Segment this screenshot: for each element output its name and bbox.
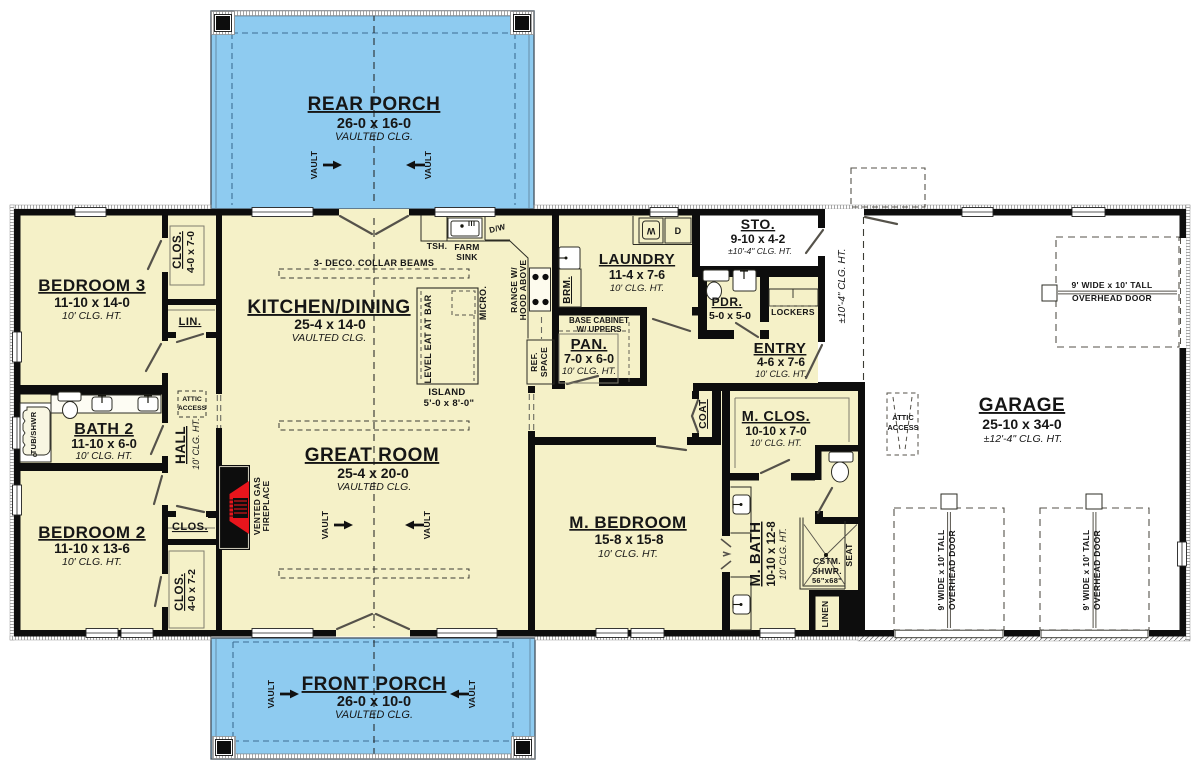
svg-text:OVERHEAD DOOR: OVERHEAD DOOR <box>1092 530 1102 610</box>
svg-text:REF.: REF. <box>529 352 539 372</box>
svg-text:±10'-4" CLG. HT.: ±10'-4" CLG. HT. <box>728 246 792 256</box>
svg-text:FARM: FARM <box>454 242 479 252</box>
svg-text:10' CLG. HT.: 10' CLG. HT. <box>750 438 801 448</box>
svg-text:10-10 x 7-0: 10-10 x 7-0 <box>745 424 807 438</box>
svg-text:STO.: STO. <box>741 216 775 232</box>
svg-text:10' CLG. HT.: 10' CLG. HT. <box>778 528 788 579</box>
svg-text:BEDROOM 3: BEDROOM 3 <box>38 276 145 295</box>
svg-text:ATTIC: ATTIC <box>892 413 914 422</box>
svg-text:VAULTED CLG.: VAULTED CLG. <box>337 481 412 493</box>
svg-text:SPACE: SPACE <box>539 347 549 377</box>
svg-text:SINK: SINK <box>456 252 478 262</box>
svg-text:VAULT: VAULT <box>266 679 276 708</box>
svg-text:ACCESS: ACCESS <box>887 423 918 432</box>
svg-text:MICRO.: MICRO. <box>478 286 488 320</box>
svg-text:VAULTED CLG.: VAULTED CLG. <box>335 131 413 143</box>
svg-text:10' CLG. HT.: 10' CLG. HT. <box>62 310 122 322</box>
svg-text:9' WIDE x 10' TALL: 9' WIDE x 10' TALL <box>1071 280 1152 290</box>
svg-text:7-0 x 6-0: 7-0 x 6-0 <box>564 352 614 366</box>
svg-text:M. BEDROOM: M. BEDROOM <box>569 513 686 532</box>
svg-text:LIN.: LIN. <box>179 316 202 328</box>
svg-text:ACCESS: ACCESS <box>178 405 207 412</box>
svg-text:4-0 x 7-0: 4-0 x 7-0 <box>185 231 197 273</box>
svg-text:LEVEL EAT AT BAR: LEVEL EAT AT BAR <box>423 294 433 383</box>
svg-text:CLOS.: CLOS. <box>174 573 186 611</box>
svg-text:W/ UPPERS: W/ UPPERS <box>577 325 623 334</box>
svg-text:FIREPLACE: FIREPLACE <box>261 481 271 532</box>
svg-text:BASE CABINET: BASE CABINET <box>569 316 629 325</box>
svg-text:LINEN: LINEN <box>820 601 830 628</box>
svg-text:10' CLG. HT.: 10' CLG. HT. <box>75 451 132 462</box>
svg-text:25-4 x 14-0: 25-4 x 14-0 <box>294 316 366 332</box>
svg-text:10' CLG. HT.: 10' CLG. HT. <box>610 283 664 294</box>
svg-text:W: W <box>646 226 655 236</box>
svg-text:VAULTED CLG.: VAULTED CLG. <box>335 709 413 721</box>
svg-text:±10'-4" CLG. HT.: ±10'-4" CLG. HT. <box>837 248 848 323</box>
svg-text:10' CLG. HT.: 10' CLG. HT. <box>755 369 806 379</box>
svg-text:LOCKERS: LOCKERS <box>771 307 815 317</box>
svg-text:SEAT: SEAT <box>844 543 854 567</box>
svg-text:10' CLG. HT.: 10' CLG. HT. <box>62 556 122 568</box>
svg-text:11-10 x 13-6: 11-10 x 13-6 <box>54 541 130 556</box>
svg-text:HALL: HALL <box>173 426 188 464</box>
svg-text:10' CLG. HT.: 10' CLG. HT. <box>598 548 658 560</box>
svg-text:LAUNDRY: LAUNDRY <box>599 251 675 268</box>
svg-text:10' CLG. HT.: 10' CLG. HT. <box>191 418 201 469</box>
svg-text:10' CLG. HT.: 10' CLG. HT. <box>562 366 616 377</box>
svg-text:COAT: COAT <box>698 399 709 429</box>
svg-text:11-4 x 7-6: 11-4 x 7-6 <box>609 268 665 282</box>
svg-text:ATTIC: ATTIC <box>182 396 202 403</box>
svg-text:FRONT PORCH: FRONT PORCH <box>302 674 447 695</box>
svg-text:PAN.: PAN. <box>571 336 608 353</box>
svg-text:GARAGE: GARAGE <box>979 395 1065 416</box>
svg-text:5'-0 x 8'-0": 5'-0 x 8'-0" <box>424 398 475 409</box>
svg-text:CLOS.: CLOS. <box>172 231 184 269</box>
svg-text:TUB/SHWR: TUB/SHWR <box>29 411 38 454</box>
svg-text:10-10 x 12-8: 10-10 x 12-8 <box>766 521 778 587</box>
svg-text:HOOD ABOVE: HOOD ABOVE <box>518 260 528 321</box>
svg-text:ISLAND: ISLAND <box>428 387 465 398</box>
svg-text:CSTM.: CSTM. <box>813 556 841 566</box>
svg-text:VAULTED CLG.: VAULTED CLG. <box>292 332 367 344</box>
svg-text:VAULT: VAULT <box>309 150 319 179</box>
svg-text:26-0 x 16-0: 26-0 x 16-0 <box>337 116 411 132</box>
svg-text:25-4 x 20-0: 25-4 x 20-0 <box>337 465 409 481</box>
svg-text:CLOS.: CLOS. <box>172 521 208 533</box>
svg-text:25-10 x 34-0: 25-10 x 34-0 <box>982 416 1062 432</box>
svg-text:26-0 x 10-0: 26-0 x 10-0 <box>337 694 411 710</box>
svg-text:11-10 x 14-0: 11-10 x 14-0 <box>54 295 130 310</box>
svg-text:M. BATH: M. BATH <box>747 522 764 587</box>
svg-text:4-0 x 7-2: 4-0 x 7-2 <box>186 569 198 611</box>
svg-text:M. CLOS.: M. CLOS. <box>742 409 810 425</box>
svg-text:9' WIDE x 10' TALL: 9' WIDE x 10' TALL <box>1081 529 1091 610</box>
svg-text:GREAT ROOM: GREAT ROOM <box>305 445 439 466</box>
svg-text:TSH.: TSH. <box>427 241 448 251</box>
svg-text:9' WIDE x 10' TALL: 9' WIDE x 10' TALL <box>936 529 946 610</box>
svg-text:OVERHEAD DOOR: OVERHEAD DOOR <box>1072 293 1152 303</box>
svg-text:PDR.: PDR. <box>712 295 743 309</box>
svg-text:4-6 x 7-6: 4-6 x 7-6 <box>757 355 805 369</box>
svg-text:±12'-4" CLG. HT.: ±12'-4" CLG. HT. <box>984 433 1063 445</box>
svg-text:BRM.: BRM. <box>562 276 573 304</box>
svg-text:OVERHEAD DOOR: OVERHEAD DOOR <box>947 530 957 610</box>
svg-text:BEDROOM 2: BEDROOM 2 <box>38 523 145 542</box>
svg-text:3- DECO. COLLAR BEAMS: 3- DECO. COLLAR BEAMS <box>314 258 434 268</box>
svg-text:11-10 x 6-0: 11-10 x 6-0 <box>71 436 137 451</box>
svg-text:15-8 x 15-8: 15-8 x 15-8 <box>594 532 664 547</box>
svg-text:9-10 x 4-2: 9-10 x 4-2 <box>731 232 786 246</box>
svg-text:SHWR.: SHWR. <box>812 566 842 576</box>
svg-text:VAULT: VAULT <box>320 510 330 539</box>
svg-text:REAR PORCH: REAR PORCH <box>308 94 441 115</box>
svg-text:D: D <box>675 226 682 236</box>
svg-text:KITCHEN/DINING: KITCHEN/DINING <box>247 297 410 318</box>
svg-text:5-0 x 5-0: 5-0 x 5-0 <box>709 310 751 322</box>
svg-text:56"x68": 56"x68" <box>812 576 842 585</box>
